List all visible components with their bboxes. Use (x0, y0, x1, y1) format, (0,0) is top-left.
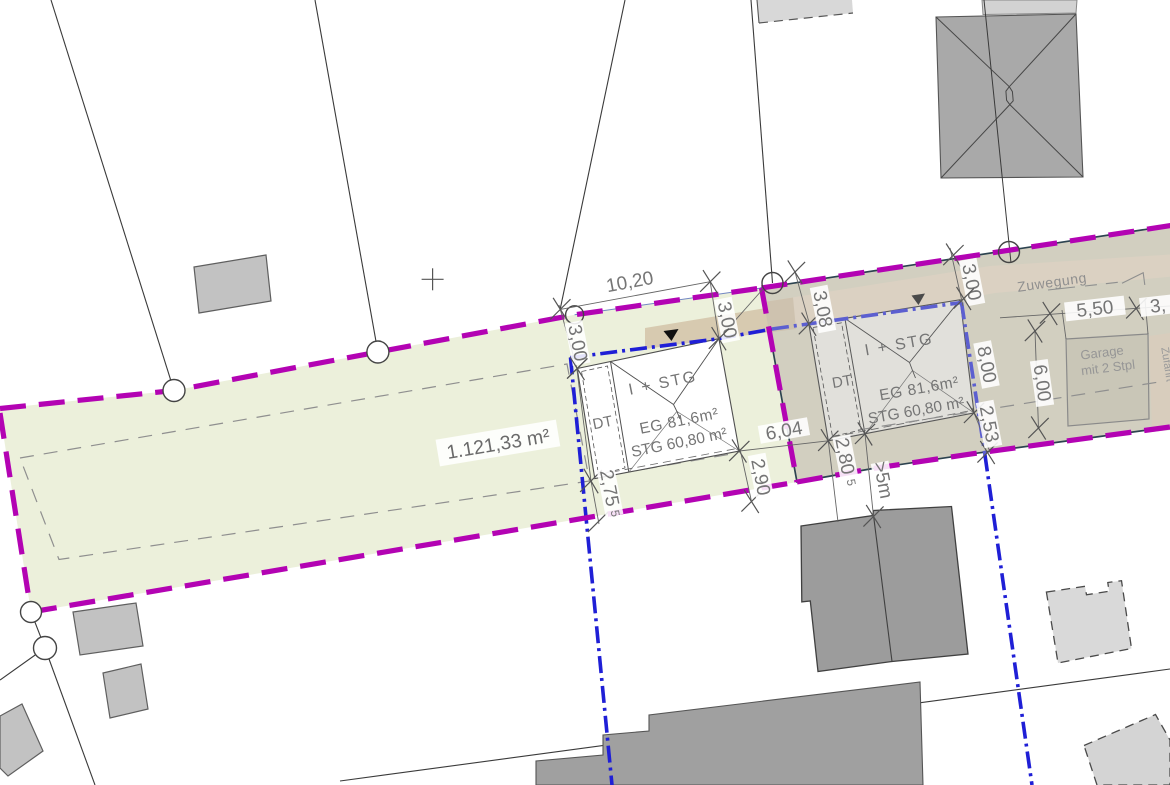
svg-text:DT: DT (831, 372, 854, 392)
svg-text:5: 5 (608, 509, 623, 519)
svg-text:3,: 3, (1149, 295, 1167, 318)
svg-text:5,50: 5,50 (1075, 297, 1114, 322)
svg-text:5: 5 (844, 478, 859, 488)
svg-text:10,20: 10,20 (605, 268, 656, 297)
